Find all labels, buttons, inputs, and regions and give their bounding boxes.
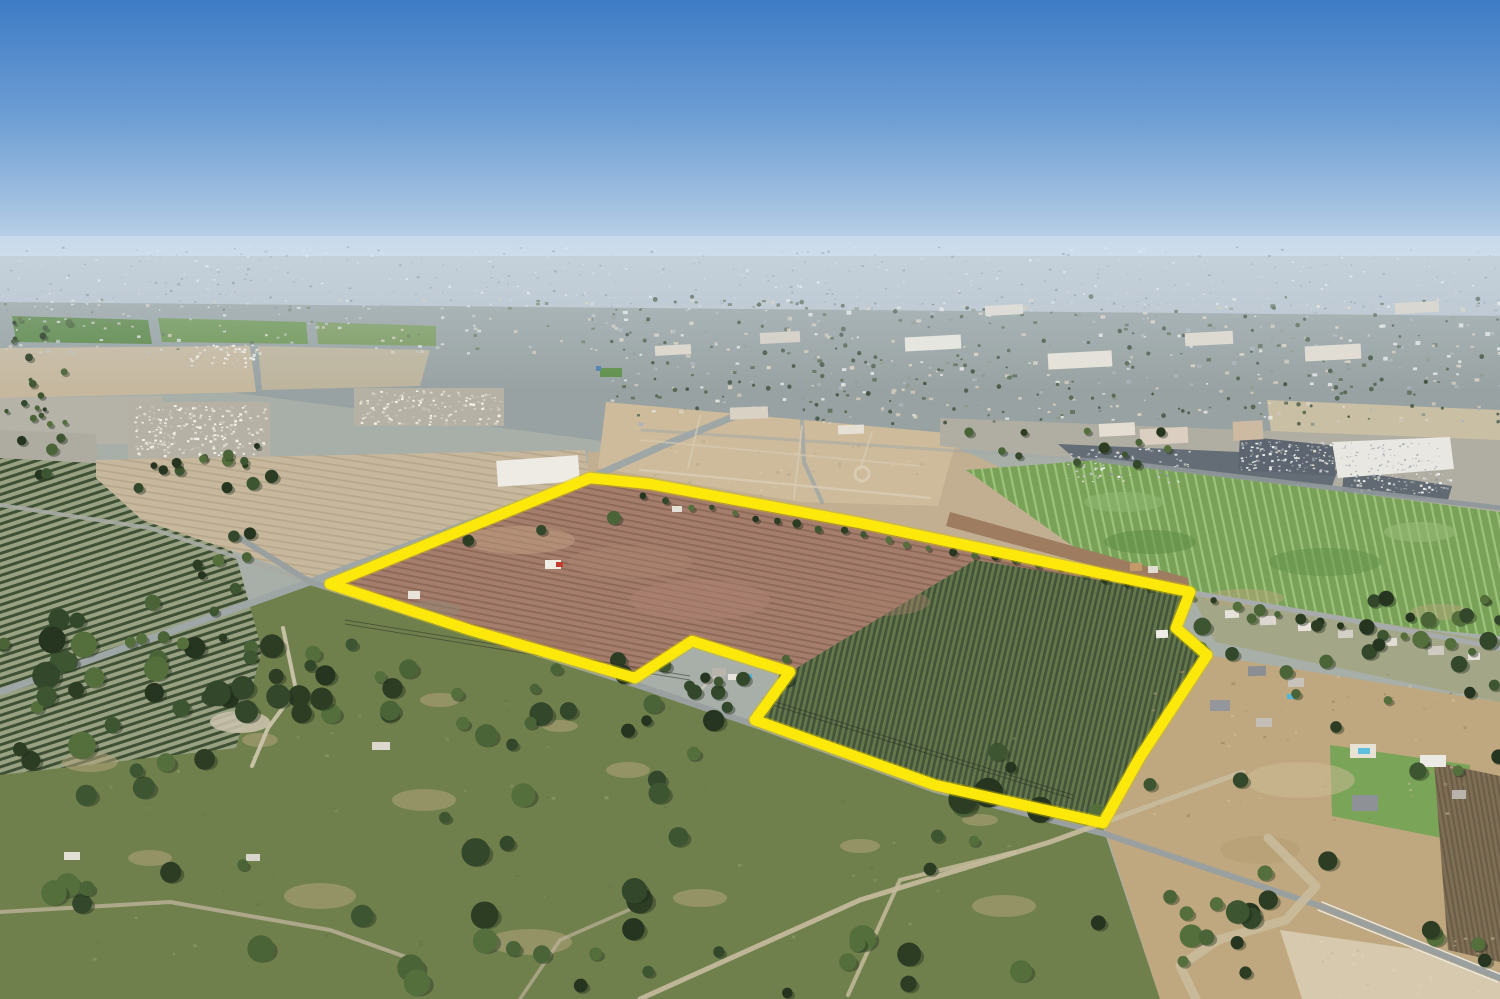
layer-haze <box>0 236 1500 391</box>
scene-svg <box>0 0 1500 999</box>
layer-sky <box>0 0 1500 268</box>
aerial-property-photo <box>0 0 1500 999</box>
region-mobile-park-base-2 <box>354 388 504 426</box>
